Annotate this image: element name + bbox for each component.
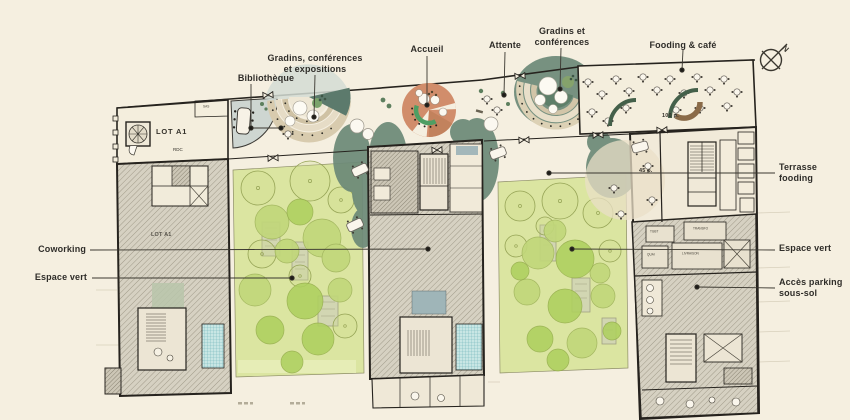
courtyard-left [233, 161, 364, 377]
room-label-livraison: LIVRAISON [682, 252, 699, 256]
stair-core [420, 154, 448, 210]
stair-core [138, 308, 186, 370]
terrace-area [585, 140, 665, 220]
room-label-rdc: RDC [173, 147, 183, 152]
label-fooding-cafe: Fooding & café [649, 40, 716, 51]
blue-room [412, 291, 446, 314]
wet-room [202, 324, 224, 368]
wet-room [456, 324, 482, 370]
label-acces-parking: Accès parking sous-sol [779, 277, 842, 298]
label-bibliotheque: Bibliothèque [238, 73, 294, 84]
label-accueil: Accueil [410, 44, 443, 55]
label-coworking: Coworking [0, 244, 86, 255]
room-label-transfo: TRANSFO [693, 227, 708, 231]
floor-plan-drawing: N [0, 0, 850, 420]
room-label-sas: SAS [203, 105, 209, 109]
left-building [105, 159, 231, 396]
room-label-quai: QUAI [647, 253, 655, 257]
stair-core [400, 317, 452, 373]
north-label: N [780, 43, 791, 54]
room-label-lot-a1-inner: LOT A1 [151, 232, 172, 238]
label-espace-vert-left: Espace vert [0, 272, 87, 283]
room-label-lot-a1: LOT A1 [156, 127, 187, 136]
label-terrasse-fooding: Terrasse fooding [779, 162, 817, 183]
room-label-tgbt: TGBT [650, 230, 658, 234]
dimension-marks [238, 402, 305, 405]
capacity-label-100: 100 p. [662, 113, 679, 119]
coworking-building [368, 140, 484, 408]
capacity-label-45: 45 p. [639, 168, 653, 174]
label-gradins-expo: Gradins, conférences et expositions [267, 53, 362, 74]
label-gradins-conferences: Gradins et conférences [535, 26, 590, 47]
floor-plan-page: N Gradins, conférences et expositions Bi… [0, 0, 850, 420]
label-espace-vert-right: Espace vert [779, 243, 831, 254]
fooding-hall [578, 60, 756, 134]
stair-core [666, 334, 696, 382]
label-attente: Attente [489, 40, 521, 51]
reception-desk [402, 83, 456, 137]
compass-icon: N [761, 43, 791, 70]
building-annex [372, 375, 484, 408]
bathrooms [642, 280, 662, 316]
stair-core [688, 142, 716, 206]
